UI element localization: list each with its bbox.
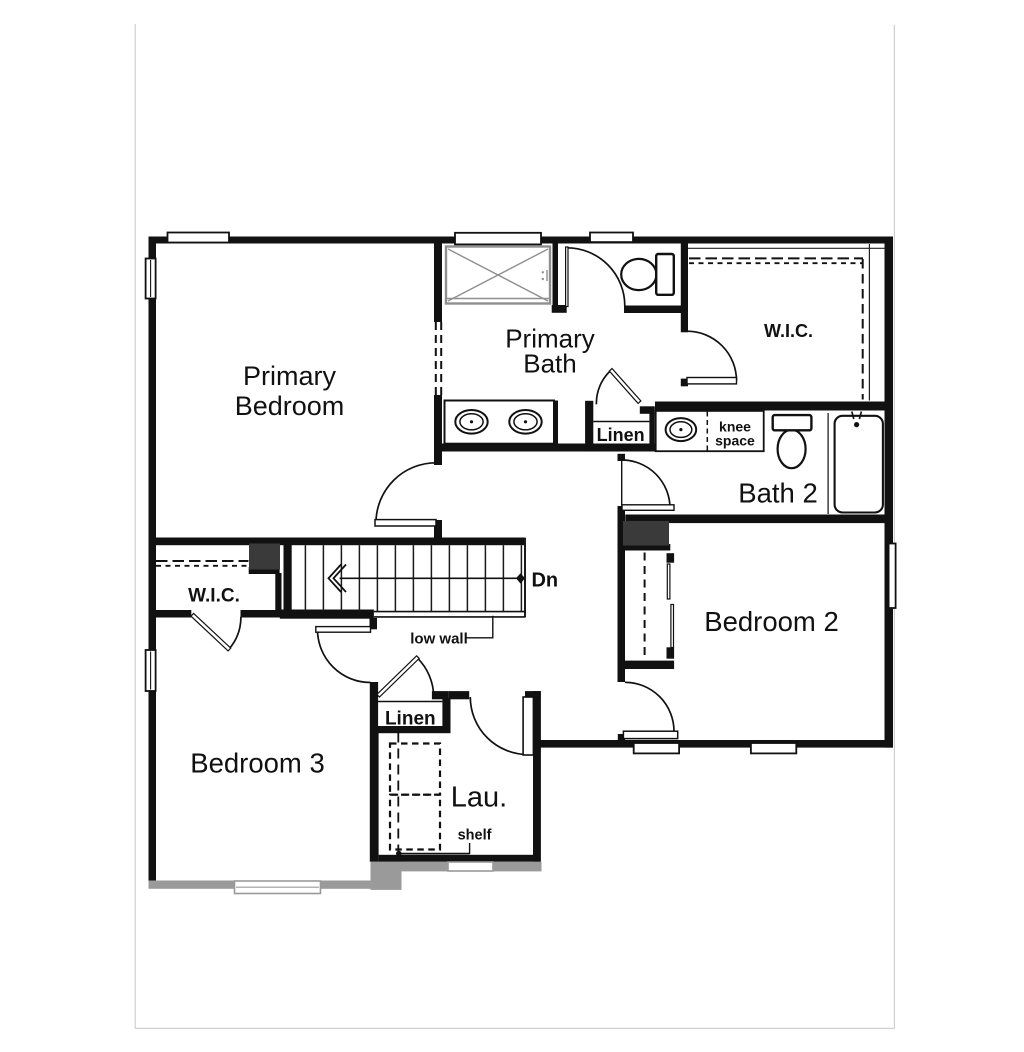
svg-text:space: space	[715, 433, 755, 449]
svg-text:Dn: Dn	[531, 570, 558, 592]
svg-text:Linen: Linen	[385, 709, 436, 730]
svg-text:Bath 2: Bath 2	[738, 478, 818, 509]
svg-text:Bedroom 2: Bedroom 2	[704, 606, 839, 637]
svg-text:Primary: Primary	[243, 361, 336, 391]
svg-text:shelf: shelf	[458, 828, 492, 844]
svg-text:Bath: Bath	[523, 349, 577, 379]
svg-text:low wall: low wall	[410, 631, 468, 648]
svg-text:W.I.C.: W.I.C.	[764, 321, 813, 341]
svg-text:W.I.C.: W.I.C.	[188, 586, 240, 607]
svg-text:Bedroom 3: Bedroom 3	[190, 747, 325, 778]
svg-text:Bedroom: Bedroom	[235, 391, 345, 421]
svg-text:Lau.: Lau.	[451, 782, 507, 814]
svg-text:Linen: Linen	[597, 425, 645, 445]
